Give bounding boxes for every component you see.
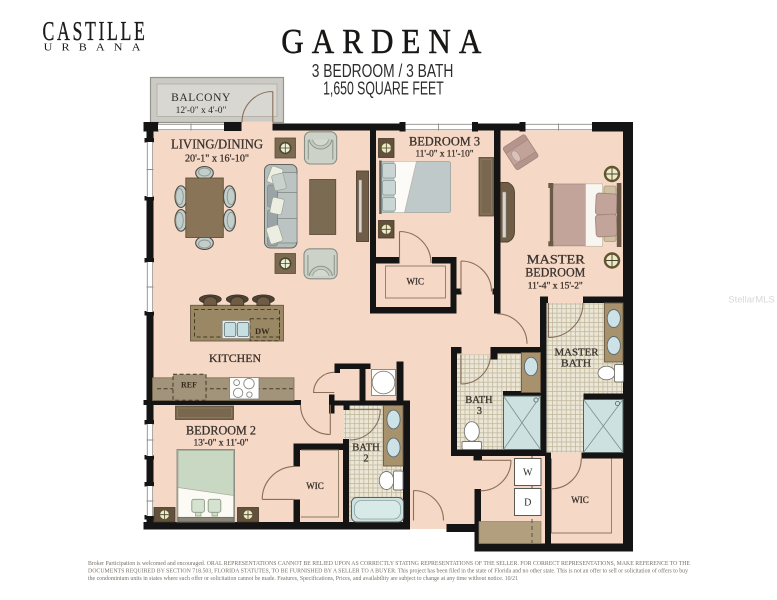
svg-text:BEDROOM 3: BEDROOM 3 (409, 135, 480, 149)
svg-text:the condominium units in state: the condominium units in states where su… (88, 575, 518, 582)
svg-text:2: 2 (363, 454, 368, 465)
svg-text:BEDROOM 2: BEDROOM 2 (186, 423, 256, 438)
svg-text:WIC: WIC (306, 481, 324, 491)
svg-text:CASTILLE: CASTILLE (43, 16, 148, 46)
svg-text:BEDROOM: BEDROOM (525, 266, 585, 280)
svg-text:11'-4" x 15'-2": 11'-4" x 15'-2" (528, 282, 583, 292)
svg-text:KITCHEN: KITCHEN (209, 353, 262, 365)
svg-text:DW: DW (255, 326, 270, 336)
svg-text:11'-0" x 11'-10": 11'-0" x 11'-10" (416, 150, 474, 160)
svg-text:REF: REF (181, 380, 197, 389)
svg-text:LIVING/DINING: LIVING/DINING (171, 137, 263, 152)
svg-text:12'-0" x 4'-0": 12'-0" x 4'-0" (176, 106, 227, 116)
svg-text:WIC: WIC (407, 277, 425, 287)
svg-text:URBANA: URBANA (44, 43, 150, 54)
svg-text:1,650 SQUARE FEET: 1,650 SQUARE FEET (323, 79, 444, 99)
svg-text:13'-0" x 11'-0": 13'-0" x 11'-0" (194, 439, 249, 449)
svg-text:D: D (524, 498, 531, 509)
svg-text:MASTER: MASTER (527, 253, 586, 267)
svg-text:BALCONY: BALCONY (171, 92, 231, 104)
svg-text:W: W (523, 468, 533, 479)
svg-text:3: 3 (477, 406, 482, 417)
svg-text:StellarMLS: StellarMLS (728, 295, 774, 306)
svg-text:BATH: BATH (352, 443, 380, 454)
svg-text:BATH: BATH (465, 395, 493, 406)
svg-text:GARDENA: GARDENA (281, 22, 489, 61)
svg-text:Broker Participation is welcom: Broker Participation is welcomed and enc… (88, 560, 690, 567)
svg-text:WIC: WIC (571, 495, 589, 505)
svg-text:BATH: BATH (561, 358, 591, 370)
svg-text:20'-1" x 16'-10": 20'-1" x 16'-10" (185, 154, 249, 165)
svg-text:DOCUMENTS REQUIRED BY SECTION: DOCUMENTS REQUIRED BY SECTION 718.503, F… (88, 568, 689, 575)
